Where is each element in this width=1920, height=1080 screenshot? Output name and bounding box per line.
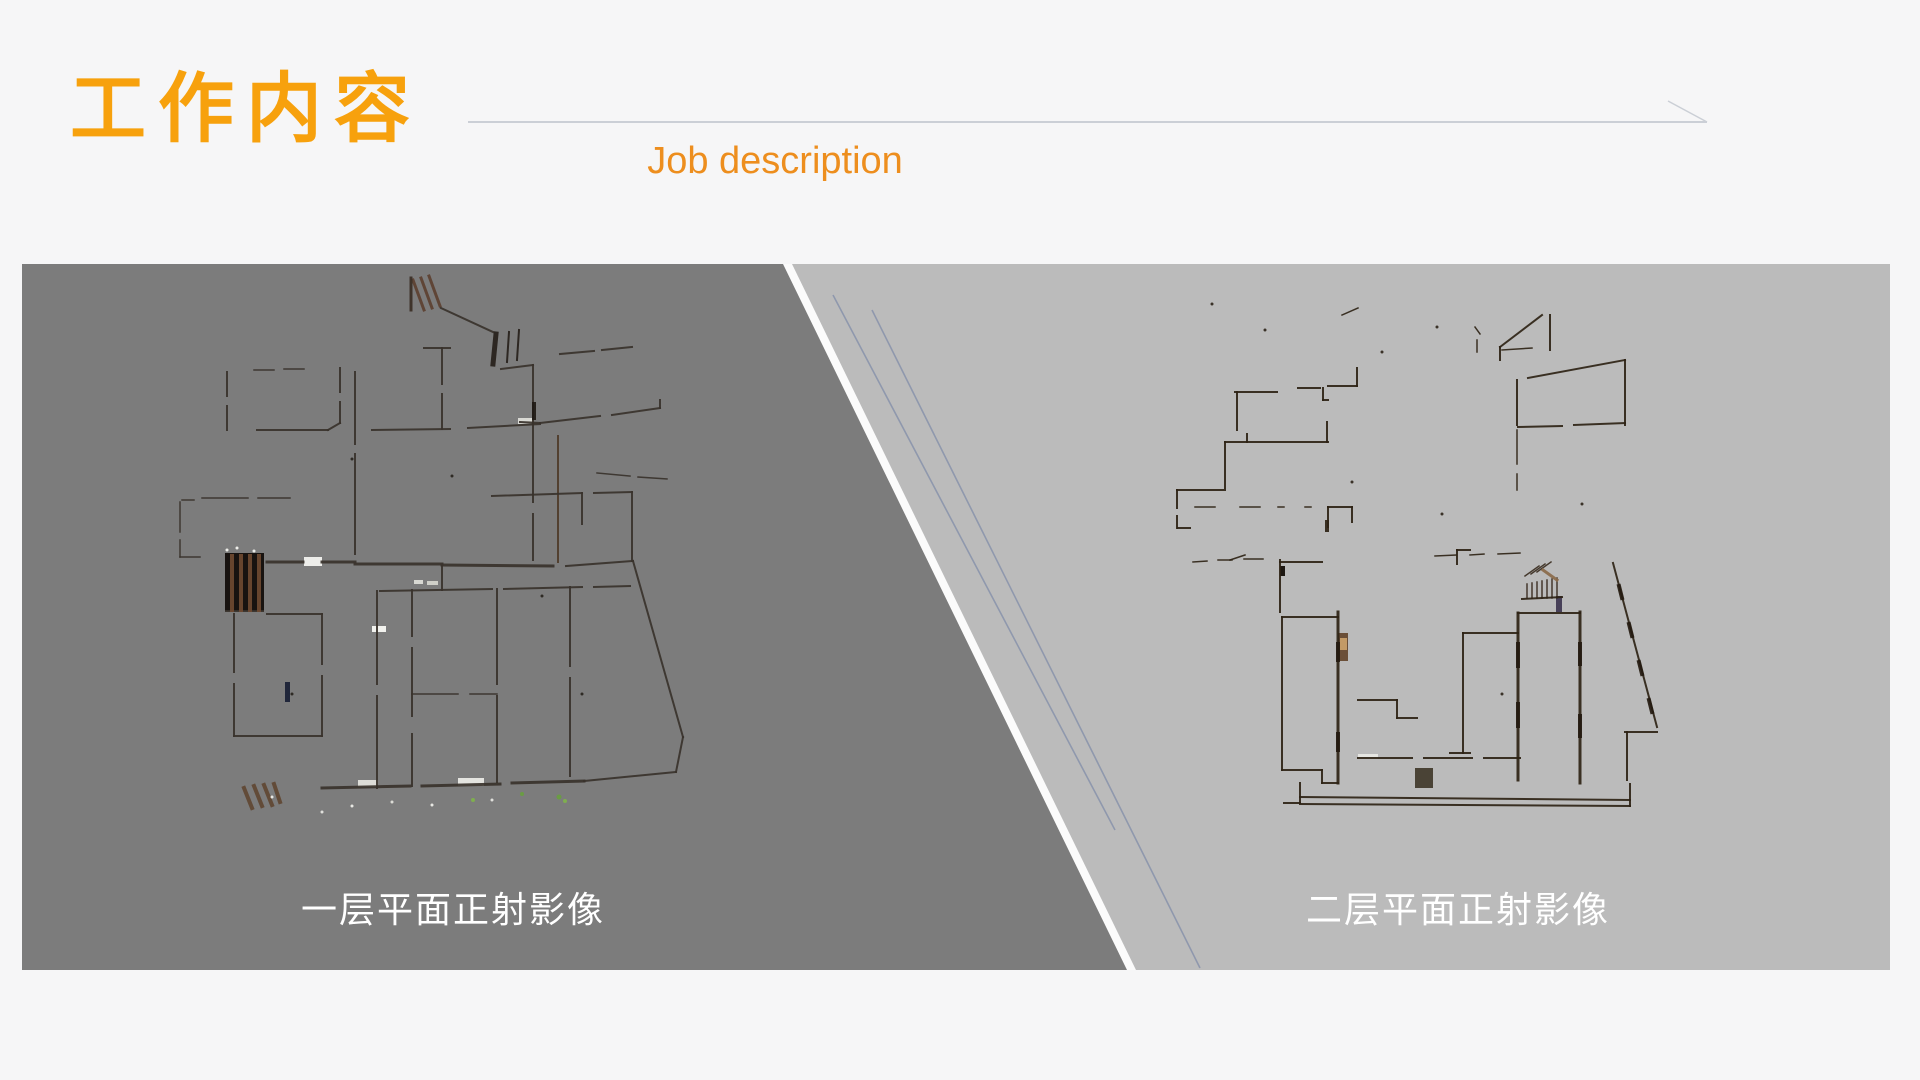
orthophoto-canvas: [22, 264, 1890, 970]
page-subtitle: Job description: [625, 140, 925, 183]
header-underline-decoration: [0, 0, 1920, 200]
slide: 工作内容 Job description 一层平面正射影像 二层平面正射影像: [0, 0, 1920, 1080]
left-panel-caption: 一层平面正射影像: [301, 881, 605, 933]
header-arrow-tip-icon: [1668, 101, 1707, 122]
right-panel-caption: 二层平面正射影像: [1306, 881, 1610, 933]
orthophoto-composite: 一层平面正射影像 二层平面正射影像: [22, 264, 1890, 970]
